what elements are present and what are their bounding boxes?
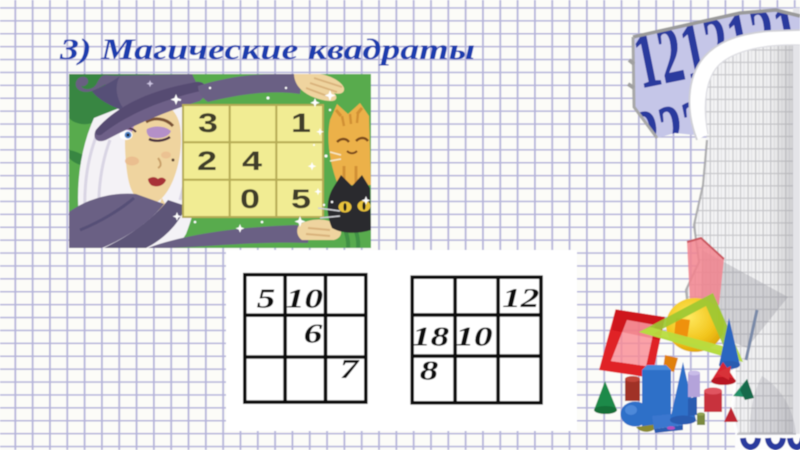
svg-text:4: 4 — [242, 145, 262, 176]
svg-text:5: 5 — [291, 183, 311, 214]
svg-text:0: 0 — [240, 183, 260, 214]
svg-text:7: 7 — [340, 354, 360, 385]
svg-text:12: 12 — [502, 283, 539, 314]
svg-text:8: 8 — [420, 356, 438, 387]
svg-text:18: 18 — [412, 322, 449, 353]
svg-text:3: 3 — [198, 107, 218, 138]
svg-text:6: 6 — [304, 319, 323, 350]
svg-text:5: 5 — [257, 284, 275, 315]
svg-text:10: 10 — [286, 284, 323, 315]
svg-text:1: 1 — [291, 107, 311, 138]
svg-text:3) Магические квадраты: 3) Магические квадраты — [59, 32, 475, 66]
svg-text:10: 10 — [456, 322, 493, 353]
svg-text:2: 2 — [197, 145, 217, 176]
